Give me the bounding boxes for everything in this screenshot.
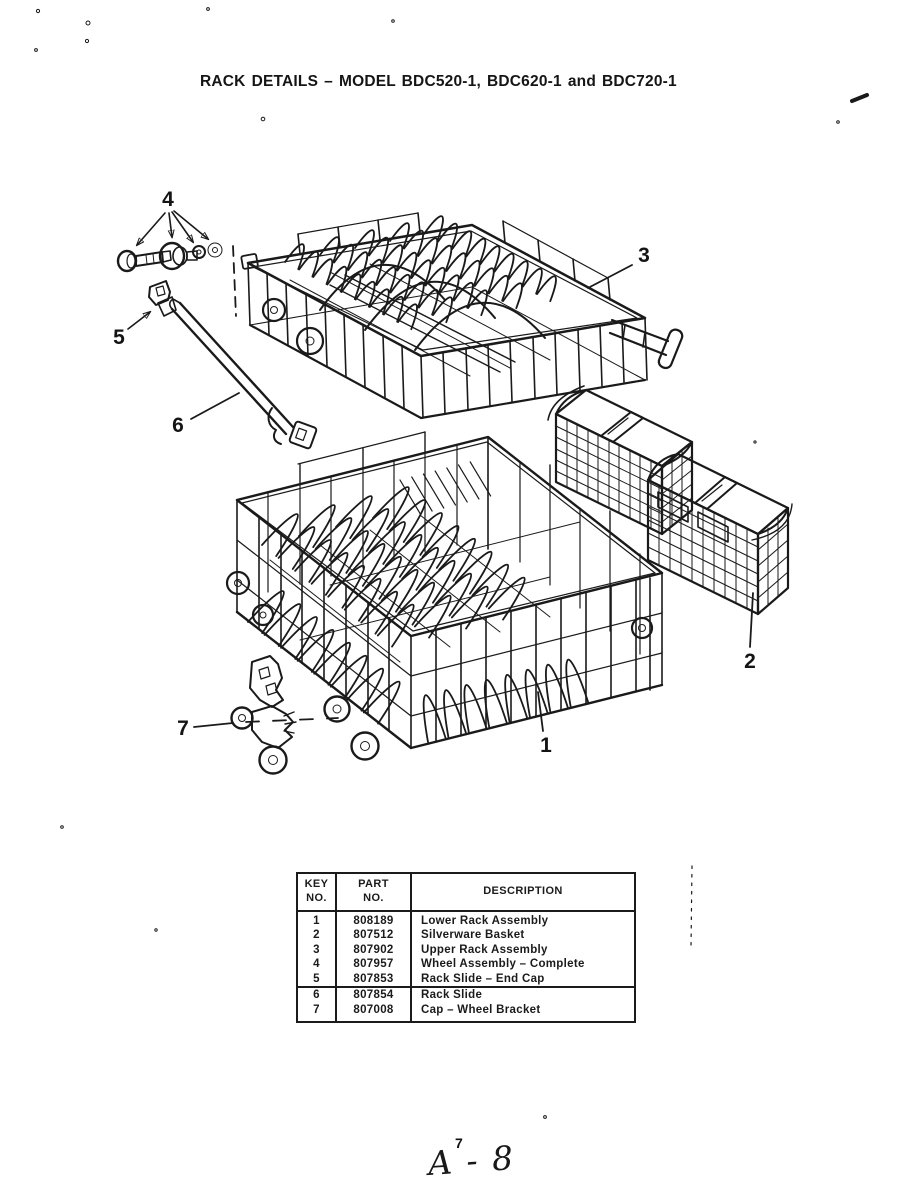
callout-5-label: 5 xyxy=(113,326,125,349)
basket-handle xyxy=(601,412,643,442)
rack-slide-end-cap-part xyxy=(149,281,176,316)
col-header-part: PART NO. xyxy=(336,873,411,911)
callout-4: 4 xyxy=(137,188,208,245)
callout-6: 6 xyxy=(172,393,239,437)
table-row: 5 807853 Rack Slide – End Cap xyxy=(297,972,635,988)
table-row: 7 807008 Cap – Wheel Bracket xyxy=(297,1003,635,1022)
callout-5: 5 xyxy=(113,312,150,349)
wheel-bracket-cap-part xyxy=(232,656,297,774)
manual-page: RACK DETAILS – MODEL BDC520-1, BDC620-1 … xyxy=(0,0,917,1200)
callout-1-label: 1 xyxy=(540,734,552,757)
table-header-row: KEY NO. PART NO. DESCRIPTION xyxy=(297,873,635,911)
col-header-key: KEY NO. xyxy=(297,873,336,911)
callout-6-label: 6 xyxy=(172,414,184,437)
wheel-assembly-part xyxy=(118,243,222,271)
table-row: 6 807854 Rack Slide xyxy=(297,987,635,1003)
callout-3: 3 xyxy=(588,244,650,288)
parts-table: KEY NO. PART NO. DESCRIPTION 1 808189 Lo… xyxy=(296,872,636,1023)
callout-4-label: 4 xyxy=(162,188,174,211)
col-header-description: DESCRIPTION xyxy=(411,873,635,911)
table-row: 4 807957 Wheel Assembly – Complete xyxy=(297,957,635,972)
callout-3-label: 3 xyxy=(638,244,650,267)
callout-2: 2 xyxy=(744,593,756,673)
upper-rack-assembly xyxy=(241,213,684,418)
handwritten-note: A - 8 xyxy=(427,1138,516,1183)
lower-rack-assembly xyxy=(227,432,662,760)
callout-2-label: 2 xyxy=(744,650,756,673)
pen-mark xyxy=(852,95,867,101)
silverware-basket-front xyxy=(648,454,792,614)
callout-1: 1 xyxy=(538,692,552,757)
callout-7-label: 7 xyxy=(177,717,189,740)
basket-handle xyxy=(695,477,737,509)
alignment-dashed-line xyxy=(233,246,236,316)
table-row: 3 807902 Upper Rack Assembly xyxy=(297,943,635,958)
table-row: 1 808189 Lower Rack Assembly xyxy=(297,911,635,929)
table-row: 2 807512 Silverware Basket xyxy=(297,928,635,943)
rack-slide-part xyxy=(170,299,317,449)
